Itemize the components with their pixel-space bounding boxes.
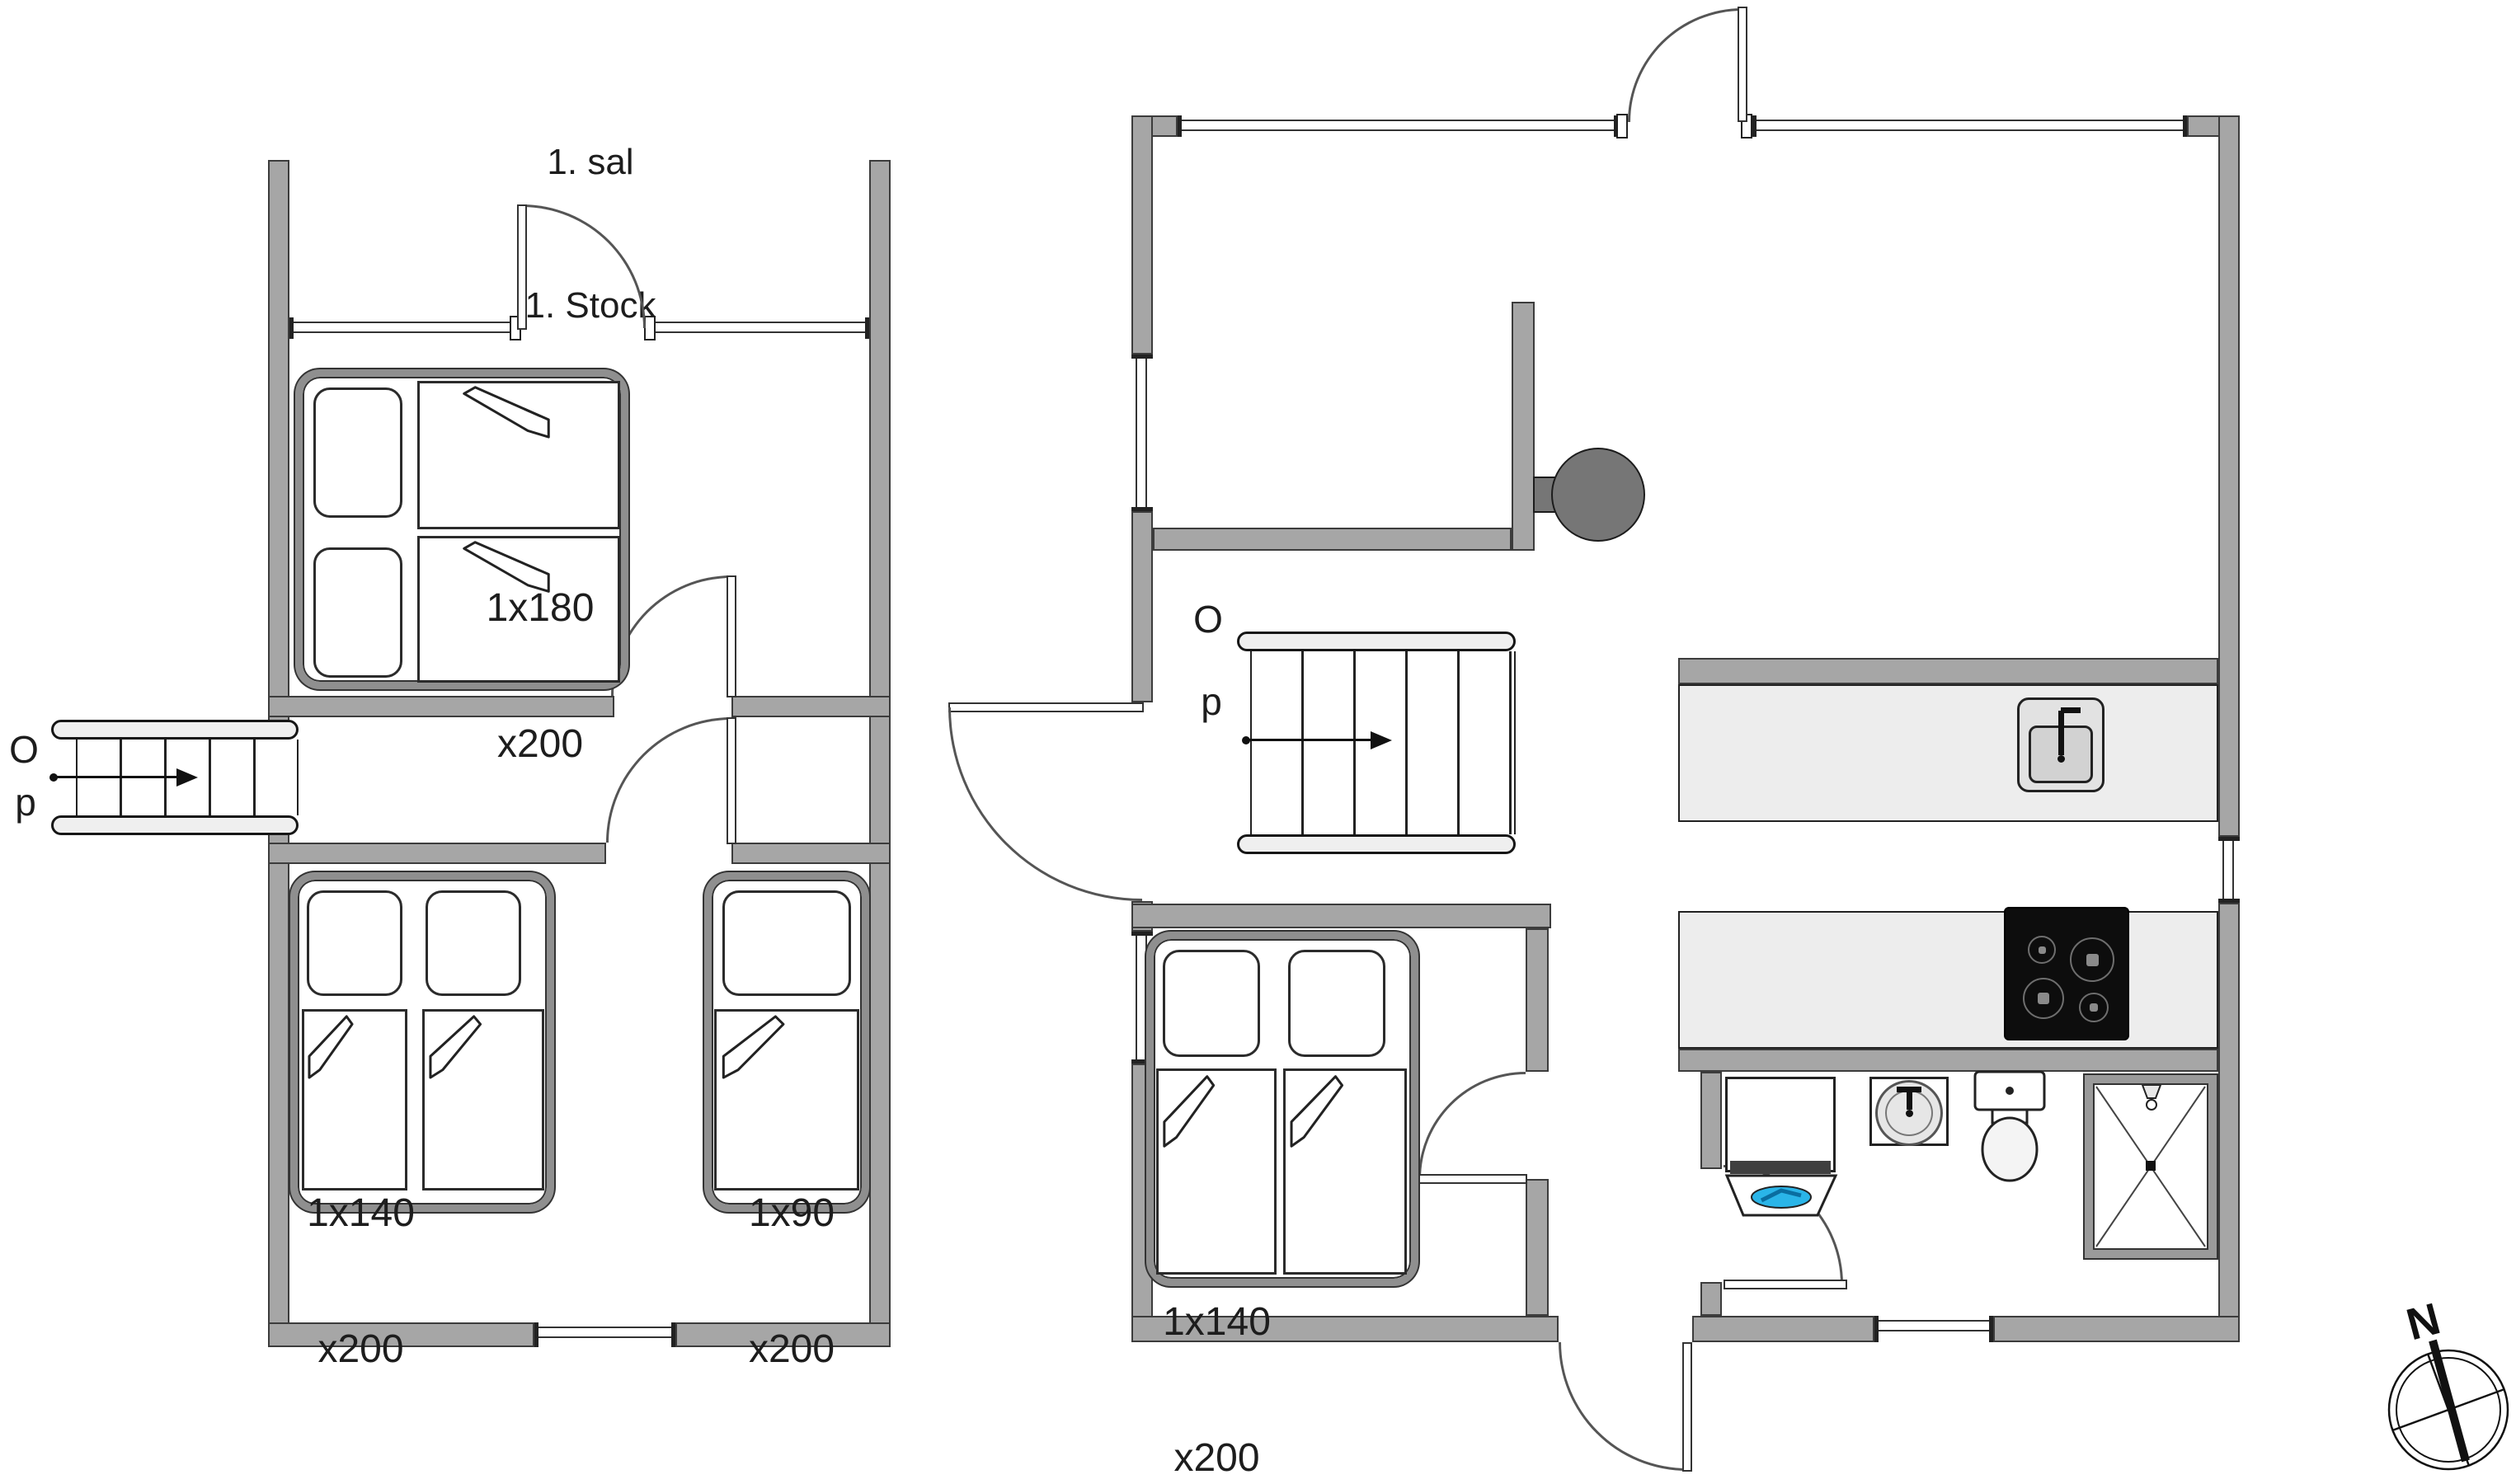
rb-wall-living-horizontal — [1153, 528, 1512, 551]
kitchen-counter-back-edge — [1678, 658, 2218, 684]
stairs-gf-rail-bottom — [1237, 834, 1516, 854]
bed-single-size-label: 1x90 x200 — [701, 1100, 882, 1463]
rb-bedroom-wall-top — [1131, 904, 1551, 928]
bathroom-wall-top — [1678, 1049, 2218, 1072]
washing-machine-door-icon — [1719, 1172, 1842, 1223]
bathroom-wall-left-lower — [1700, 1282, 1722, 1316]
rb-wall-left-1 — [1131, 115, 1153, 355]
duvet-fold-icon — [420, 383, 558, 463]
stairs-ff-label-p: p — [7, 783, 45, 821]
cooktop-burner-small-1 — [2028, 936, 2056, 964]
cooktop-burner-large-1 — [2070, 937, 2114, 982]
bed-double-size-line1: 1x180 — [445, 585, 635, 631]
rb-window-top-left — [1178, 115, 1618, 137]
rb-back-door-panel — [1682, 1342, 1692, 1472]
bed-twin-gf-pillow-1 — [1163, 950, 1260, 1057]
rb-bedroom-door-panel — [1417, 1174, 1527, 1184]
stairs-ff-rail-bottom — [51, 815, 299, 835]
rb-window-left-upper — [1131, 355, 1153, 511]
lb-wall-left-upper — [268, 160, 289, 726]
bed-twin-ff-size-line1: 1x140 — [272, 1190, 449, 1236]
floor-plan: 1. sal 1. Stock 1x180 x200 — [0, 0, 2516, 1484]
compass-north-label: N — [2401, 1294, 2445, 1350]
rb-side-door-swing — [948, 707, 1142, 901]
stairs-ff-arrow-line — [53, 776, 176, 778]
duvet-fold-icon — [717, 1012, 815, 1109]
wood-stove-icon — [1551, 448, 1645, 542]
rb-window-right — [2218, 837, 2240, 903]
duvet-fold-icon — [1159, 1071, 1239, 1181]
rb-entry-door-panel — [1738, 7, 1747, 122]
stairs-ff-label-o: O — [5, 730, 43, 768]
bed-single-size-line1: 1x90 — [701, 1190, 882, 1236]
bathroom-wall-left-upper — [1700, 1072, 1722, 1169]
rb-wall-left-2 — [1131, 511, 1153, 702]
cooktop-burner-small-2 — [2079, 993, 2109, 1022]
bed-twin-ff-size-line2: x200 — [272, 1327, 449, 1372]
lb-bedroom-door-panel — [727, 575, 736, 697]
bed-twin-ff-pillow-2 — [426, 890, 521, 996]
rb-wall-bottom-mid — [1692, 1316, 1874, 1342]
kitchen-faucet-dot — [2057, 755, 2065, 763]
bed-twin-ff-pillow-1 — [307, 890, 402, 996]
rb-bedroom-door-swing — [1418, 1072, 1526, 1179]
kitchen-faucet-icon — [2058, 711, 2064, 755]
bed-twin-gf-size-line1: 1x140 — [1128, 1299, 1305, 1345]
basin-faucet-dot — [1906, 1110, 1913, 1117]
rb-back-door-swing — [1559, 1342, 1687, 1471]
rb-wall-living-stub — [1512, 302, 1535, 551]
rb-bedroom-wall-right-upper — [1526, 928, 1549, 1072]
rb-bedroom-wall-right-lower — [1526, 1179, 1549, 1316]
rb-wall-right-upper — [2218, 115, 2240, 837]
toilet-icon — [1971, 1068, 2049, 1184]
duvet-fold-icon — [1286, 1071, 1369, 1181]
stairs-gf-label-o: O — [1189, 600, 1227, 638]
basin-faucet-icon — [1907, 1087, 1912, 1110]
cooktop-icon — [2004, 907, 2129, 1040]
rb-entry-door-swing — [1628, 8, 1742, 122]
bed-double-size-label: 1x180 x200 — [445, 495, 635, 857]
rb-window-top-right — [1752, 115, 2187, 137]
stairs-ff-rail-top — [51, 720, 299, 740]
lb-window-front-left — [289, 317, 520, 339]
bathroom-door-panel — [1724, 1280, 1847, 1289]
lb-lower-room-door-panel — [727, 717, 736, 844]
cooktop-burner-large-2 — [2023, 978, 2064, 1019]
lb-front-door-panel — [517, 204, 527, 330]
shower-icon — [2095, 1085, 2207, 1248]
bed-twin-gf-size-line2: x200 — [1128, 1435, 1305, 1481]
bed-double-pillow-2 — [313, 547, 402, 678]
rb-wall-right-lower — [2218, 903, 2240, 1342]
bed-twin-gf-pillow-2 — [1288, 950, 1385, 1057]
lb-window-bottom — [534, 1322, 675, 1347]
duvet-fold-icon — [304, 1012, 374, 1109]
floor-title-line1: 1. sal — [459, 139, 722, 186]
stairs-gf-label-p: p — [1192, 683, 1230, 721]
bed-twin-ff-size-label: 1x140 x200 — [272, 1100, 449, 1463]
kitchen-counter-sink — [1678, 684, 2218, 822]
rb-window-bottom — [1874, 1316, 1993, 1342]
kitchen-faucet-bar — [2061, 707, 2081, 713]
bed-twin-gf-size-label: 1x140 x200 — [1128, 1209, 1305, 1484]
washing-machine-icon — [1725, 1077, 1836, 1172]
stairs-ff-arrow-head-icon — [176, 768, 198, 787]
bed-double-size-line2: x200 — [445, 721, 635, 767]
lb-window-front-right — [646, 317, 869, 339]
stairs-gf-rail-top — [1237, 632, 1516, 651]
stairs-gf-arrow-line — [1245, 739, 1371, 741]
rb-wall-bottom-right — [1993, 1316, 2240, 1342]
duvet-fold-icon — [425, 1012, 506, 1109]
bed-double-pillow-1 — [313, 387, 402, 518]
lb-front-door-jamb-right — [644, 316, 656, 340]
stairs-gf-arrow-head-icon — [1371, 731, 1392, 749]
rb-entry-door-jamb-left — [1616, 114, 1628, 139]
lb-wall-bedroom-bottom-right — [731, 696, 891, 717]
lb-wall-hall-bottom-right — [731, 843, 891, 864]
compass-icon: N — [2378, 1293, 2516, 1482]
bed-single-size-line2: x200 — [701, 1327, 882, 1372]
kitchen-counter-cooktop — [1678, 911, 2218, 1049]
bed-single-pillow — [722, 890, 851, 996]
